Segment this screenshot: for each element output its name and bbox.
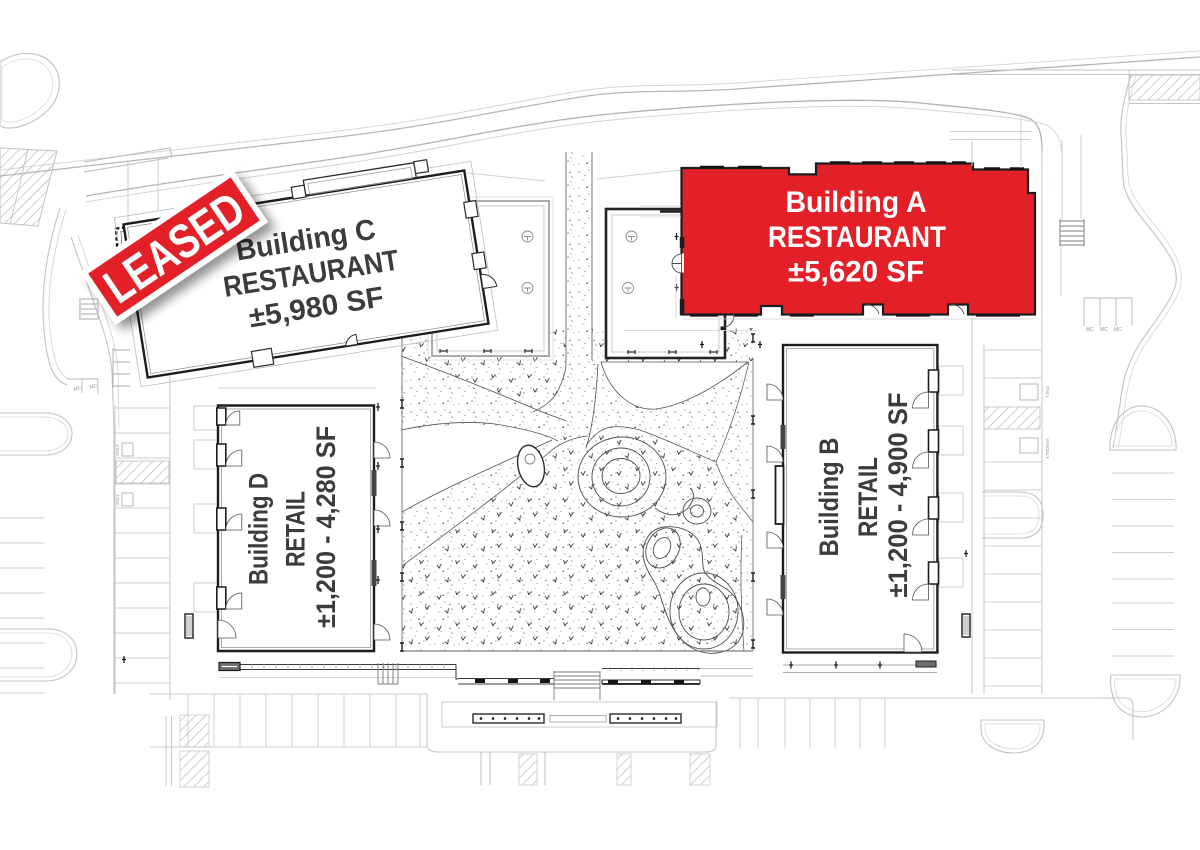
svg-text:Building B: Building B: [814, 438, 844, 557]
svg-text:MC: MC: [1100, 327, 1108, 333]
svg-text:ONLY: ONLY: [115, 444, 120, 456]
svg-text:ONLY: ONLY: [115, 494, 120, 506]
svg-text:MC: MC: [1114, 327, 1122, 333]
svg-text:±1,200 - 4,900 SF: ±1,200 - 4,900 SF: [883, 393, 913, 598]
svg-text:ONLY: ONLY: [1045, 386, 1050, 398]
svg-text:Building A: Building A: [786, 186, 927, 219]
svg-text:Building D: Building D: [244, 473, 274, 585]
svg-text:±5,620 SF: ±5,620 SF: [788, 256, 924, 289]
svg-text:MC: MC: [1086, 327, 1094, 333]
svg-text:±1,200 - 4,280 SF: ±1,200 - 4,280 SF: [311, 426, 341, 628]
svg-text:VANONLY: VANONLY: [1045, 438, 1050, 459]
svg-text:RETAIL: RETAIL: [281, 491, 311, 567]
svg-text:RESTAURANT: RESTAURANT: [768, 221, 946, 254]
svg-text:RETAIL: RETAIL: [853, 457, 883, 537]
